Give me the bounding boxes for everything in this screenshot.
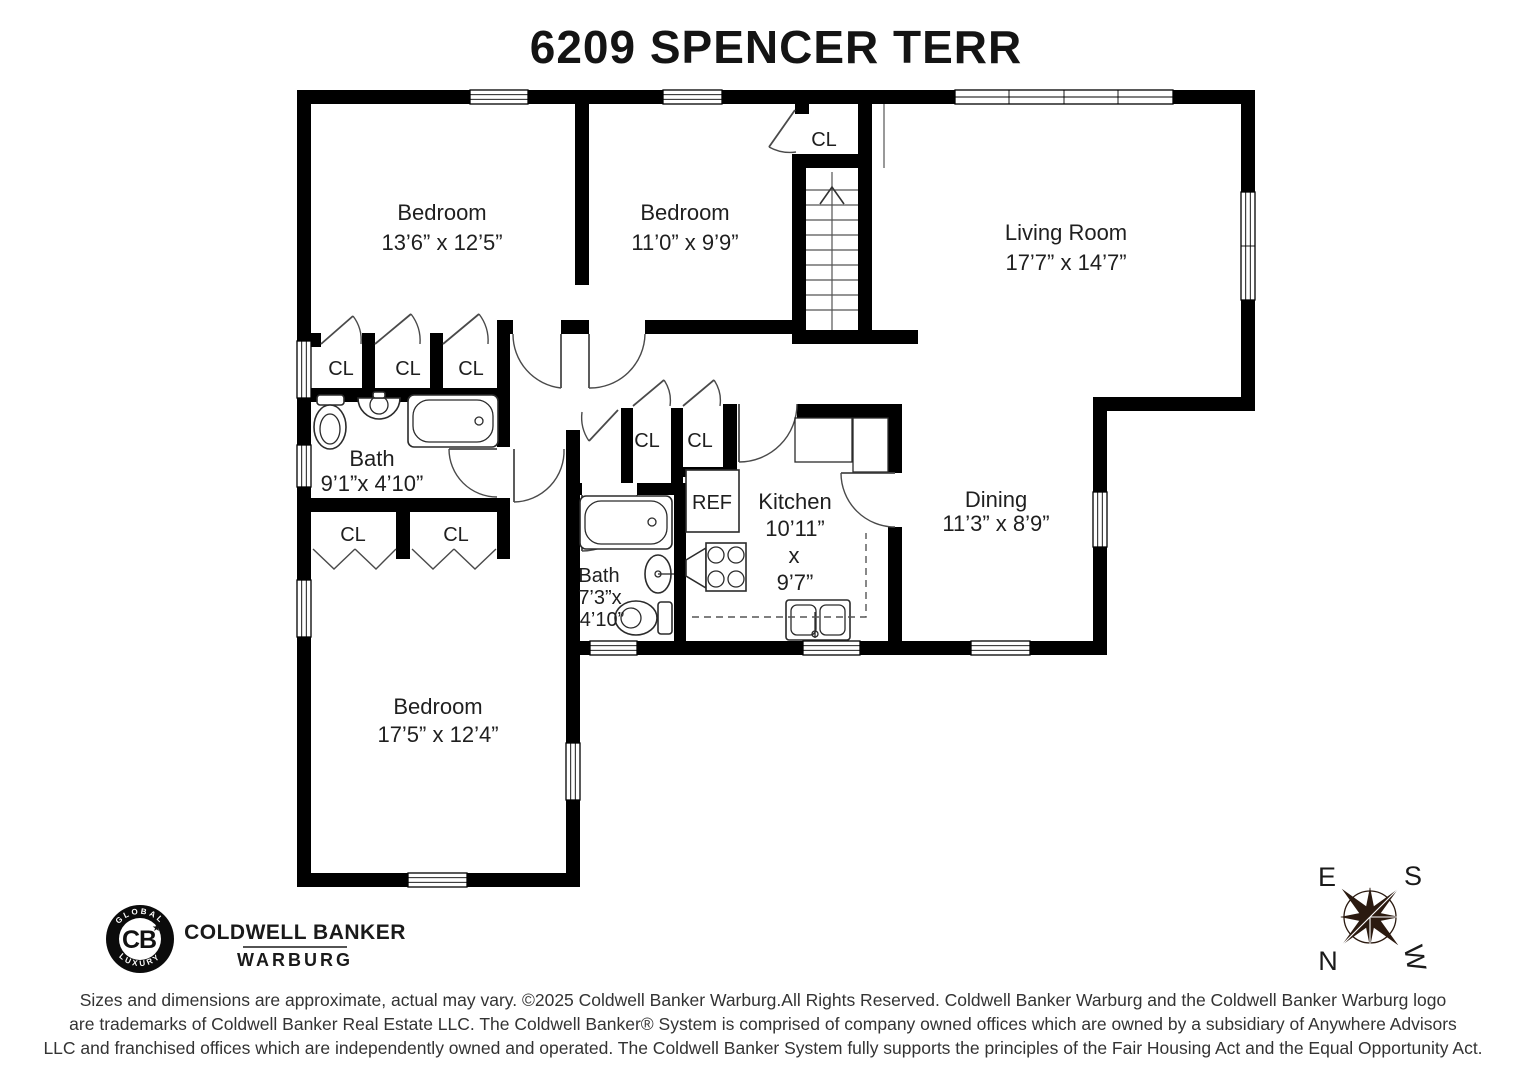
- compass-s: S: [1404, 861, 1422, 891]
- door-midcloset-1: [633, 380, 670, 406]
- wall-kitchen-top: [797, 404, 888, 418]
- wall-left: [297, 90, 311, 887]
- window-living-top: [955, 90, 1173, 104]
- wall-bath2-top-b: [637, 483, 676, 495]
- label-bedroom2-dims: 11’0” x 9’9”: [631, 230, 738, 255]
- kitchen-upper-cabinet: [795, 418, 852, 462]
- wall-cl3-div2: [430, 333, 443, 390]
- compass-n: N: [1318, 946, 1338, 976]
- floor-plan-page: 6209 SPENCER TERR: [0, 0, 1527, 1080]
- disclaimer-line1: Sizes and dimensions are approximate, ac…: [80, 990, 1447, 1010]
- label-kitchen-dim1: 10’11”: [765, 516, 825, 541]
- kitchen-sink: [786, 600, 850, 640]
- window-kitchen-bottom: [803, 641, 860, 655]
- wall-midcl-left: [621, 408, 633, 483]
- label-bedroom2-name: Bedroom: [640, 200, 729, 225]
- label-dining-name: Dining: [965, 487, 1027, 512]
- window-dining-bottom: [971, 641, 1030, 655]
- wall-stair-bottom: [792, 330, 918, 344]
- wall-cl2-div: [396, 512, 410, 559]
- page-title: 6209 SPENCER TERR: [530, 21, 1023, 73]
- brand-name-line1: COLDWELL BANKER: [184, 921, 406, 944]
- label-kitchen-dim3: 9’7”: [777, 570, 814, 595]
- label-closet-bed3b: CL: [443, 524, 469, 546]
- door-kitchen-hall: [739, 404, 797, 462]
- label-living-dims: 17’7” x 14’7”: [1005, 250, 1126, 275]
- sink-bath2: [645, 555, 674, 593]
- brand-name-line2: WARBURG: [237, 950, 353, 970]
- label-living-name: Living Room: [1005, 220, 1127, 245]
- door-closet-row-3: [443, 314, 488, 344]
- wall-stair-left: [792, 168, 806, 344]
- door-closet-row-2: [375, 314, 420, 344]
- wall-bed3-right: [566, 430, 580, 887]
- wall-cl2-right: [497, 512, 510, 559]
- wall-hall-stub1: [497, 320, 513, 334]
- toilet-bath1: [314, 395, 346, 449]
- wall-midcl-div: [671, 408, 683, 483]
- window-bath2-bottom: [590, 641, 637, 655]
- label-closet-top: CL: [811, 129, 837, 151]
- door-closet-row-1: [321, 316, 361, 344]
- wall-bath2-top-a: [566, 483, 582, 495]
- window-bed1-top: [470, 90, 528, 104]
- door-corridor-bedroom3: [514, 449, 564, 502]
- label-closet-row1: CL: [328, 358, 354, 380]
- compass-w: W: [1398, 943, 1432, 974]
- label-refrigerator: REF: [692, 492, 732, 514]
- window-bed3-left: [297, 580, 311, 637]
- wall-cl3-stub1: [311, 333, 321, 347]
- label-kitchen-dim2: x: [789, 543, 800, 568]
- wall-stair-right: [858, 104, 872, 344]
- door-bath1: [449, 449, 497, 497]
- label-bedroom3-name: Bedroom: [393, 694, 482, 719]
- disclaimer-block: Sizes and dimensions are approximate, ac…: [43, 990, 1482, 1058]
- bathtub-bath1: [408, 395, 498, 447]
- door-bifold-closet-right: [412, 549, 496, 569]
- wall-bath1-bottom: [297, 498, 510, 512]
- door-bedroom2: [589, 334, 645, 388]
- label-bath2-name: Bath: [578, 565, 619, 587]
- wall-bed1-bed2: [575, 104, 589, 285]
- compass-e: E: [1318, 862, 1336, 892]
- wall-kitchen-dining-upper: [888, 404, 902, 473]
- wall-topcl-bottom: [792, 154, 858, 168]
- seal-monogram: CB: [122, 926, 156, 954]
- door-midcloset-2: [683, 380, 720, 406]
- compass-rose: E S N W: [1318, 861, 1432, 976]
- label-closet-bed3a: CL: [340, 524, 366, 546]
- bathtub-bath2: [580, 496, 672, 549]
- label-bath1-dims: 9’1”x 4’10”: [321, 471, 424, 496]
- window-bed2-top: [663, 90, 722, 104]
- window-bed3-right: [566, 743, 580, 800]
- wall-living-step: [1093, 397, 1255, 411]
- wall-cl3-div1: [362, 333, 375, 390]
- window-bed1-left: [297, 341, 311, 398]
- disclaimer-line3: LLC and franchised offices which are ind…: [43, 1038, 1482, 1058]
- kitchen-corner-cabinet: [853, 418, 888, 472]
- label-closet-mid1: CL: [634, 430, 660, 452]
- label-bedroom1-dims: 13’6” x 12’5”: [381, 230, 502, 255]
- brand-logo: GLOBAL LUXURY CB ★ COLDWELL BANKER WARBU…: [106, 905, 406, 973]
- label-closet-row2: CL: [395, 358, 421, 380]
- label-bedroom1-name: Bedroom: [397, 200, 486, 225]
- wall-bath2-right: [674, 483, 686, 655]
- label-bedroom3-dims: 17’5” x 12’4”: [377, 722, 498, 747]
- label-bath1-name: Bath: [349, 446, 394, 471]
- label-bath2-dim1: 7’3”x: [578, 587, 621, 609]
- door-bedroom1: [513, 334, 561, 388]
- label-kitchen-name: Kitchen: [758, 489, 831, 514]
- door-bath2-vestibule: [582, 410, 618, 441]
- label-closet-mid2: CL: [687, 430, 713, 452]
- door-bifold-closet-left: [313, 549, 396, 569]
- label-closet-row3: CL: [458, 358, 484, 380]
- stove: [686, 543, 746, 591]
- disclaimer-line2: are trademarks of Coldwell Banker Real E…: [69, 1014, 1457, 1034]
- window-bed3-bottom: [408, 873, 467, 887]
- label-bath2-dim2: 4’10”: [580, 609, 624, 631]
- window-living-right: [1241, 192, 1255, 300]
- floor-plan-canvas: 6209 SPENCER TERR: [0, 0, 1527, 1080]
- wall-kitchen-dining-lower: [888, 527, 902, 655]
- wall-hall-stub2: [561, 320, 589, 334]
- door-kitchen-dining: [841, 473, 895, 527]
- door-top-closet: [769, 110, 796, 152]
- wall-bed2-bottom: [645, 320, 795, 334]
- seal-star-icon: ★: [152, 923, 161, 934]
- window-dining-right: [1093, 492, 1107, 547]
- window-bath1-left: [297, 445, 311, 487]
- label-dining-dims: 11’3” x 8’9”: [942, 511, 1049, 536]
- wall-topcl-stub: [795, 104, 809, 114]
